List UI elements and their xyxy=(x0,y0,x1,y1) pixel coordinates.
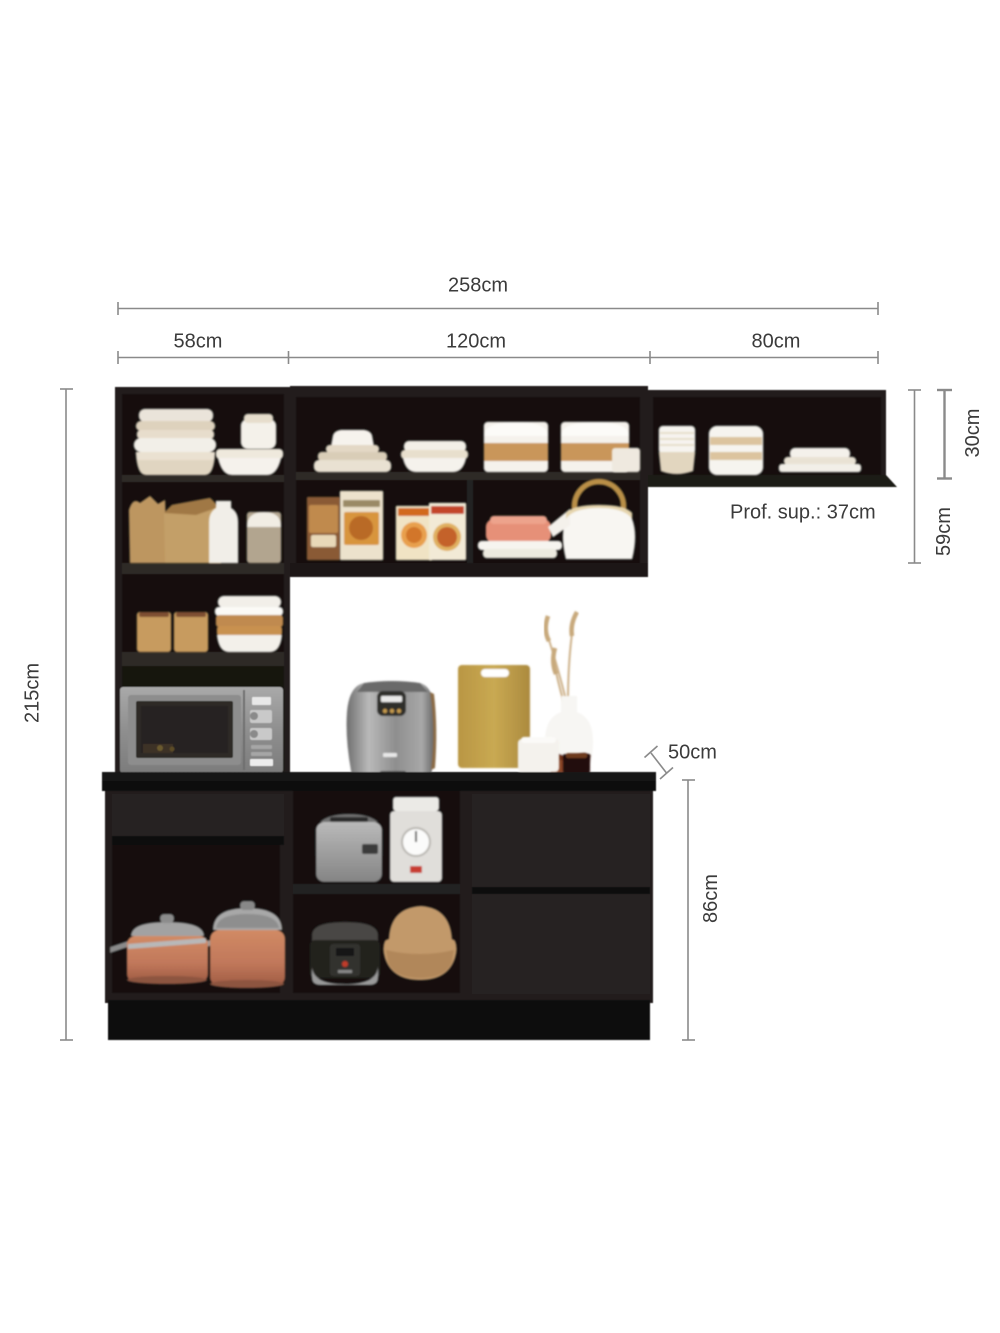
svg-text:30cm: 30cm xyxy=(962,409,984,458)
svg-text:50cm: 50cm xyxy=(668,741,717,763)
svg-text:59cm: 59cm xyxy=(933,507,955,556)
svg-text:58cm: 58cm xyxy=(174,331,223,353)
svg-text:80cm: 80cm xyxy=(752,331,801,353)
svg-text:120cm: 120cm xyxy=(446,331,506,353)
svg-text:Prof. sup.: 37cm: Prof. sup.: 37cm xyxy=(730,502,876,524)
svg-text:86cm: 86cm xyxy=(700,874,722,923)
svg-text:215cm: 215cm xyxy=(22,663,44,723)
svg-text:258cm: 258cm xyxy=(448,275,508,297)
